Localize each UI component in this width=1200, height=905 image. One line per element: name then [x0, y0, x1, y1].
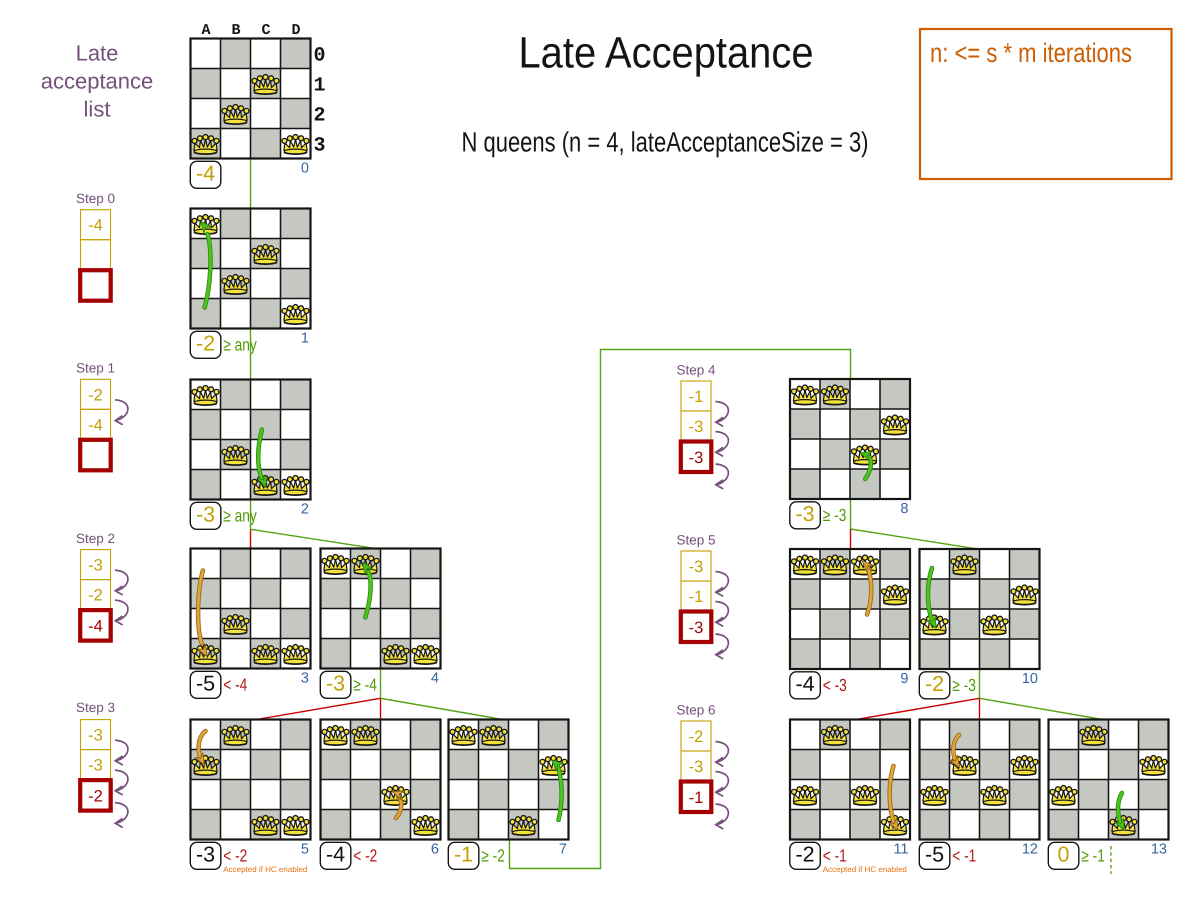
svg-text:-4: -4: [795, 672, 814, 696]
svg-text:-4: -4: [196, 161, 215, 185]
svg-text:-3: -3: [196, 502, 215, 526]
svg-text:< -1: < -1: [952, 845, 976, 865]
svg-text:-3: -3: [689, 619, 704, 637]
svg-text:Step 0: Step 0: [76, 191, 115, 206]
svg-text:-2: -2: [795, 842, 814, 866]
svg-text:≥ -3: ≥ -3: [823, 505, 847, 525]
svg-text:-3: -3: [326, 671, 345, 695]
svg-text:n: <= s * m iterations: n: <= s * m iterations: [930, 38, 1132, 68]
svg-text:< -1: < -1: [823, 845, 847, 865]
svg-text:< -2: < -2: [223, 845, 247, 865]
svg-text:0: 0: [1058, 842, 1070, 866]
svg-text:-1: -1: [689, 388, 704, 406]
svg-text:≥ any: ≥ any: [223, 334, 257, 354]
svg-text:< -4: < -4: [223, 674, 247, 694]
svg-text:5: 5: [301, 842, 309, 858]
svg-text:2: 2: [301, 502, 309, 518]
svg-text:D: D: [291, 22, 300, 39]
svg-text:-4: -4: [326, 842, 345, 866]
svg-text:12: 12: [1022, 842, 1038, 858]
svg-text:Accepted if HC enabled: Accepted if HC enabled: [823, 865, 907, 874]
svg-text:13: 13: [1151, 842, 1167, 858]
svg-text:Step 3: Step 3: [76, 700, 115, 715]
svg-text:-4: -4: [88, 618, 103, 636]
svg-text:Late: Late: [76, 41, 119, 66]
svg-text:-3: -3: [689, 418, 704, 436]
svg-text:7: 7: [559, 842, 567, 858]
svg-text:≥ -2: ≥ -2: [481, 845, 505, 865]
svg-text:-3: -3: [88, 757, 103, 775]
svg-text:-2: -2: [88, 788, 103, 806]
svg-text:list: list: [84, 97, 111, 122]
svg-text:-4: -4: [88, 217, 103, 235]
svg-text:A: A: [201, 22, 210, 39]
svg-text:-3: -3: [88, 557, 103, 575]
svg-text:10: 10: [1022, 671, 1038, 687]
svg-text:< -2: < -2: [353, 845, 377, 865]
svg-text:-3: -3: [689, 558, 704, 576]
svg-text:-3: -3: [88, 727, 103, 745]
svg-text:4: 4: [431, 671, 439, 687]
svg-text:≥ -4: ≥ -4: [353, 674, 377, 694]
svg-text:C: C: [261, 22, 270, 39]
svg-text:6: 6: [431, 842, 439, 858]
svg-text:3: 3: [314, 135, 326, 158]
svg-text:-2: -2: [88, 587, 103, 605]
svg-text:Late Acceptance: Late Acceptance: [519, 29, 814, 78]
svg-text:-2: -2: [196, 331, 215, 355]
svg-text:Step 2: Step 2: [76, 531, 115, 546]
svg-text:Step 6: Step 6: [676, 703, 715, 718]
svg-text:-5: -5: [196, 671, 215, 695]
svg-text:-2: -2: [925, 672, 944, 696]
svg-text:2: 2: [314, 105, 326, 128]
svg-text:-4: -4: [88, 416, 103, 434]
svg-text:-3: -3: [689, 449, 704, 467]
svg-text:≥ -3: ≥ -3: [952, 675, 976, 695]
svg-text:< -3: < -3: [823, 675, 847, 695]
svg-text:1: 1: [314, 75, 326, 98]
svg-text:Step 1: Step 1: [76, 361, 115, 376]
svg-text:-1: -1: [689, 789, 704, 807]
svg-text:Step 5: Step 5: [676, 533, 715, 548]
svg-text:≥ any: ≥ any: [223, 505, 257, 525]
svg-text:-2: -2: [689, 728, 704, 746]
svg-text:B: B: [231, 22, 240, 39]
svg-text:-1: -1: [454, 842, 473, 866]
svg-text:Accepted if HC enabled: Accepted if HC enabled: [223, 865, 307, 874]
svg-text:8: 8: [900, 501, 908, 517]
svg-text:-1: -1: [689, 588, 704, 606]
svg-text:1: 1: [301, 331, 309, 347]
svg-text:acceptance: acceptance: [41, 69, 154, 94]
svg-text:≥ -1: ≥ -1: [1081, 845, 1105, 865]
svg-text:9: 9: [900, 671, 908, 687]
svg-text:-3: -3: [689, 758, 704, 776]
svg-text:0: 0: [301, 161, 309, 177]
svg-text:0: 0: [314, 45, 326, 68]
svg-text:-3: -3: [196, 842, 215, 866]
svg-text:11: 11: [893, 842, 908, 858]
svg-text:-5: -5: [925, 842, 944, 866]
svg-text:-2: -2: [88, 386, 103, 404]
svg-text:3: 3: [301, 671, 309, 687]
svg-text:Step 4: Step 4: [676, 363, 716, 378]
svg-text:-3: -3: [795, 502, 814, 526]
svg-text:N queens (n = 4, lateAcceptanc: N queens (n = 4, lateAcceptanceSize = 3): [462, 127, 869, 158]
